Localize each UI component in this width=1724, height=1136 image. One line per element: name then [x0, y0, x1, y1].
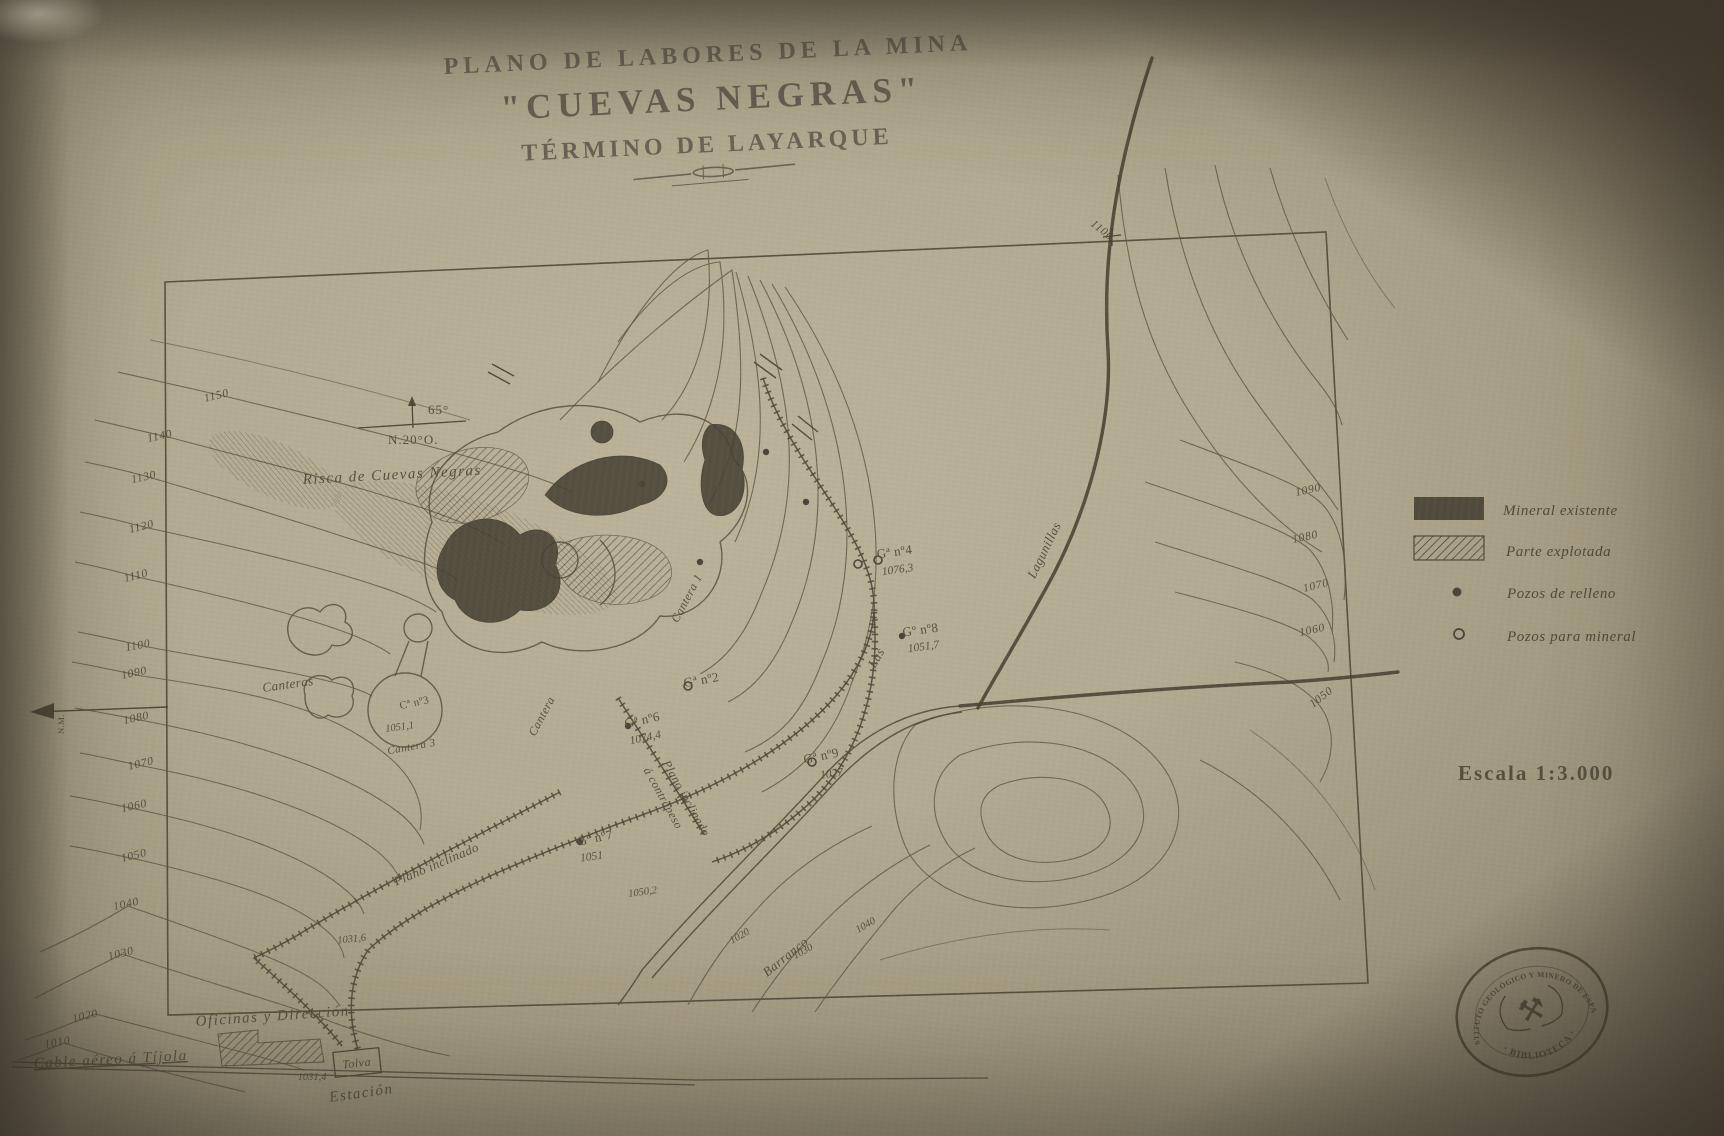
label-g6-elev: 1074,4	[629, 729, 663, 747]
label-g8-elev: 1051,7	[907, 639, 941, 655]
contour-line	[815, 848, 975, 1012]
contour-line	[1155, 542, 1335, 662]
contour-label: 1080	[122, 710, 150, 727]
mine-plan-drawing: PLANO DE LABORES DE LA MINA "CUEVAS NEGR…	[0, 0, 1724, 1136]
hammer-pick-icon: ⚒	[1515, 991, 1549, 1030]
label-g9-elev: 1027	[819, 766, 845, 781]
contour-labels-left: 1150 1140 1130 1120 1110 1100 1090 1080 …	[43, 387, 230, 1051]
label-canteras: Canteras	[261, 673, 314, 695]
label-g7-elev: 1051	[579, 849, 603, 864]
railway-branch-ticks	[712, 612, 875, 862]
legend-explotada-label: Parte explotada	[1505, 544, 1611, 560]
label-c3-name: Cª nº3	[398, 694, 430, 712]
label-g4-elev: 1076,3	[881, 562, 914, 578]
scale-label: Escala 1:3.000	[1458, 761, 1614, 785]
mineral-area	[545, 456, 667, 515]
label-g9: Gª nº9	[802, 745, 840, 767]
legend: Mineral existente Parte explotada Pozos …	[1414, 497, 1636, 645]
contour-label: 1050	[1307, 685, 1335, 711]
legend-mineral-label: Mineral existente	[1502, 503, 1618, 519]
contour-lines-bottom-right	[880, 706, 1375, 960]
contour-line	[150, 340, 470, 420]
contour-line	[1180, 440, 1345, 600]
label-spot-1050: 1050,2	[628, 885, 659, 900]
label-g6: Gª nº6	[623, 709, 661, 731]
contour-line	[1165, 168, 1338, 510]
contour-label: 1060	[1298, 622, 1326, 639]
legend-pozo-mineral-symbol	[1454, 629, 1464, 639]
legend-pozo-mineral-label: Pozos para mineral	[1506, 629, 1636, 645]
contour-line	[40, 906, 340, 1006]
title-block: PLANO DE LABORES DE LA MINA "CUEVAS NEGR…	[443, 30, 978, 196]
photographed-mine-plan: PLANO DE LABORES DE LA MINA "CUEVAS NEGR…	[0, 0, 1724, 1136]
legend-mineral-swatch	[1414, 497, 1484, 520]
contour-line	[598, 250, 709, 420]
mineral-area	[701, 424, 744, 515]
label-g4: Gª nº4	[876, 542, 913, 562]
contour-label: 1090	[1294, 482, 1322, 499]
adit-marks	[488, 354, 818, 440]
label-spot-1031-4: 1031,4	[298, 1072, 328, 1083]
quarry-keyhole-top	[404, 614, 432, 642]
label-g7: Gª nº7	[576, 827, 614, 849]
magnetic-north-label: N.M.	[56, 714, 66, 734]
mineral-area	[591, 421, 613, 443]
label-plano-inclinado-3: Plano inclinado	[391, 839, 481, 889]
label-cantera1: Cantera 1	[668, 572, 705, 625]
quarry-keyhole-neck	[395, 641, 428, 676]
oficinas-building	[218, 1030, 324, 1066]
mineral-area	[437, 519, 560, 622]
explotada-area	[416, 447, 529, 523]
contour-line	[75, 708, 424, 844]
contour-label: 1120	[128, 518, 156, 536]
contour-line	[1270, 168, 1348, 340]
contour-label: 1100	[124, 638, 151, 654]
label-cantera3: Cantera 3	[386, 737, 436, 757]
contour-line	[1325, 178, 1395, 308]
legend-pozo-relleno-label: Pozos de relleno	[1506, 586, 1616, 602]
library-stamp: INSTITUTO GEOLÓGICO Y MINERO DE ESPAÑA ·…	[1443, 932, 1621, 1091]
contour-label: 1090	[120, 665, 148, 682]
title-ornament-icon	[633, 160, 796, 187]
contour-label: 1110	[123, 567, 150, 585]
contour-label: 1040	[112, 896, 140, 913]
contour-line	[688, 826, 872, 1005]
risca-hill-hachures	[198, 415, 631, 642]
contour-line	[1215, 165, 1342, 425]
contour-label: 1080	[1291, 529, 1319, 546]
contour-label: 1020	[728, 926, 752, 946]
label-tolva: Tolva	[342, 1055, 372, 1072]
contour-lines-center	[560, 250, 876, 792]
contour-line	[981, 777, 1110, 862]
bearing-mark	[358, 396, 466, 428]
label-g2: Gª nº2	[682, 669, 720, 690]
railway-branch	[712, 612, 875, 862]
legend-explotada-swatch	[1414, 536, 1484, 560]
contour-label: 1070	[1302, 577, 1330, 595]
bearing-value: 65°	[428, 402, 449, 417]
contour-line	[894, 706, 1179, 908]
label-las: Las	[864, 645, 888, 671]
label-c3-elev: 1051,1	[385, 720, 415, 735]
contour-label: 1020	[71, 1008, 99, 1025]
quarry-scallop	[288, 605, 353, 655]
label-estacion: Estación	[327, 1081, 394, 1106]
contour-line	[1200, 760, 1340, 900]
contour-line	[880, 929, 1110, 960]
label-lagunillas: Lagunillas	[1023, 519, 1063, 581]
label-cable-aereo: Cable aéreo á Tíjola	[33, 1048, 188, 1072]
label-spot-1031-6: 1031,6	[337, 932, 368, 946]
contour-line	[934, 742, 1143, 882]
contour-label: 1140	[146, 428, 173, 445]
rambla-lagunillas	[978, 58, 1152, 708]
contour-label: 1030	[107, 945, 135, 963]
label-g8: Gº nº8	[901, 620, 939, 640]
rambla-main	[960, 672, 1398, 706]
contour-label: 1070	[127, 755, 155, 773]
contour-line	[1250, 730, 1375, 890]
page-title-line3: TÉRMINO DE LAYARQUE	[521, 124, 893, 167]
contour-label: 1150	[203, 387, 231, 405]
contour-line	[752, 845, 930, 1012]
contour-label: 1060	[120, 798, 148, 815]
contour-labels-right: 1090 1080 1070 1060 1050	[1291, 482, 1335, 711]
page-title-line2: "CUEVAS NEGRAS"	[500, 69, 924, 127]
map-border	[165, 232, 1368, 1015]
contour-label: 1050	[120, 847, 148, 865]
contour-line	[78, 632, 372, 696]
declination-value: N.20°O.	[388, 432, 438, 447]
contour-label: 1010	[43, 1035, 71, 1051]
legend-pozo-relleno-symbol	[1453, 588, 1462, 597]
contour-label: 1130	[130, 469, 157, 486]
label-cantera: Cantera	[525, 694, 557, 738]
